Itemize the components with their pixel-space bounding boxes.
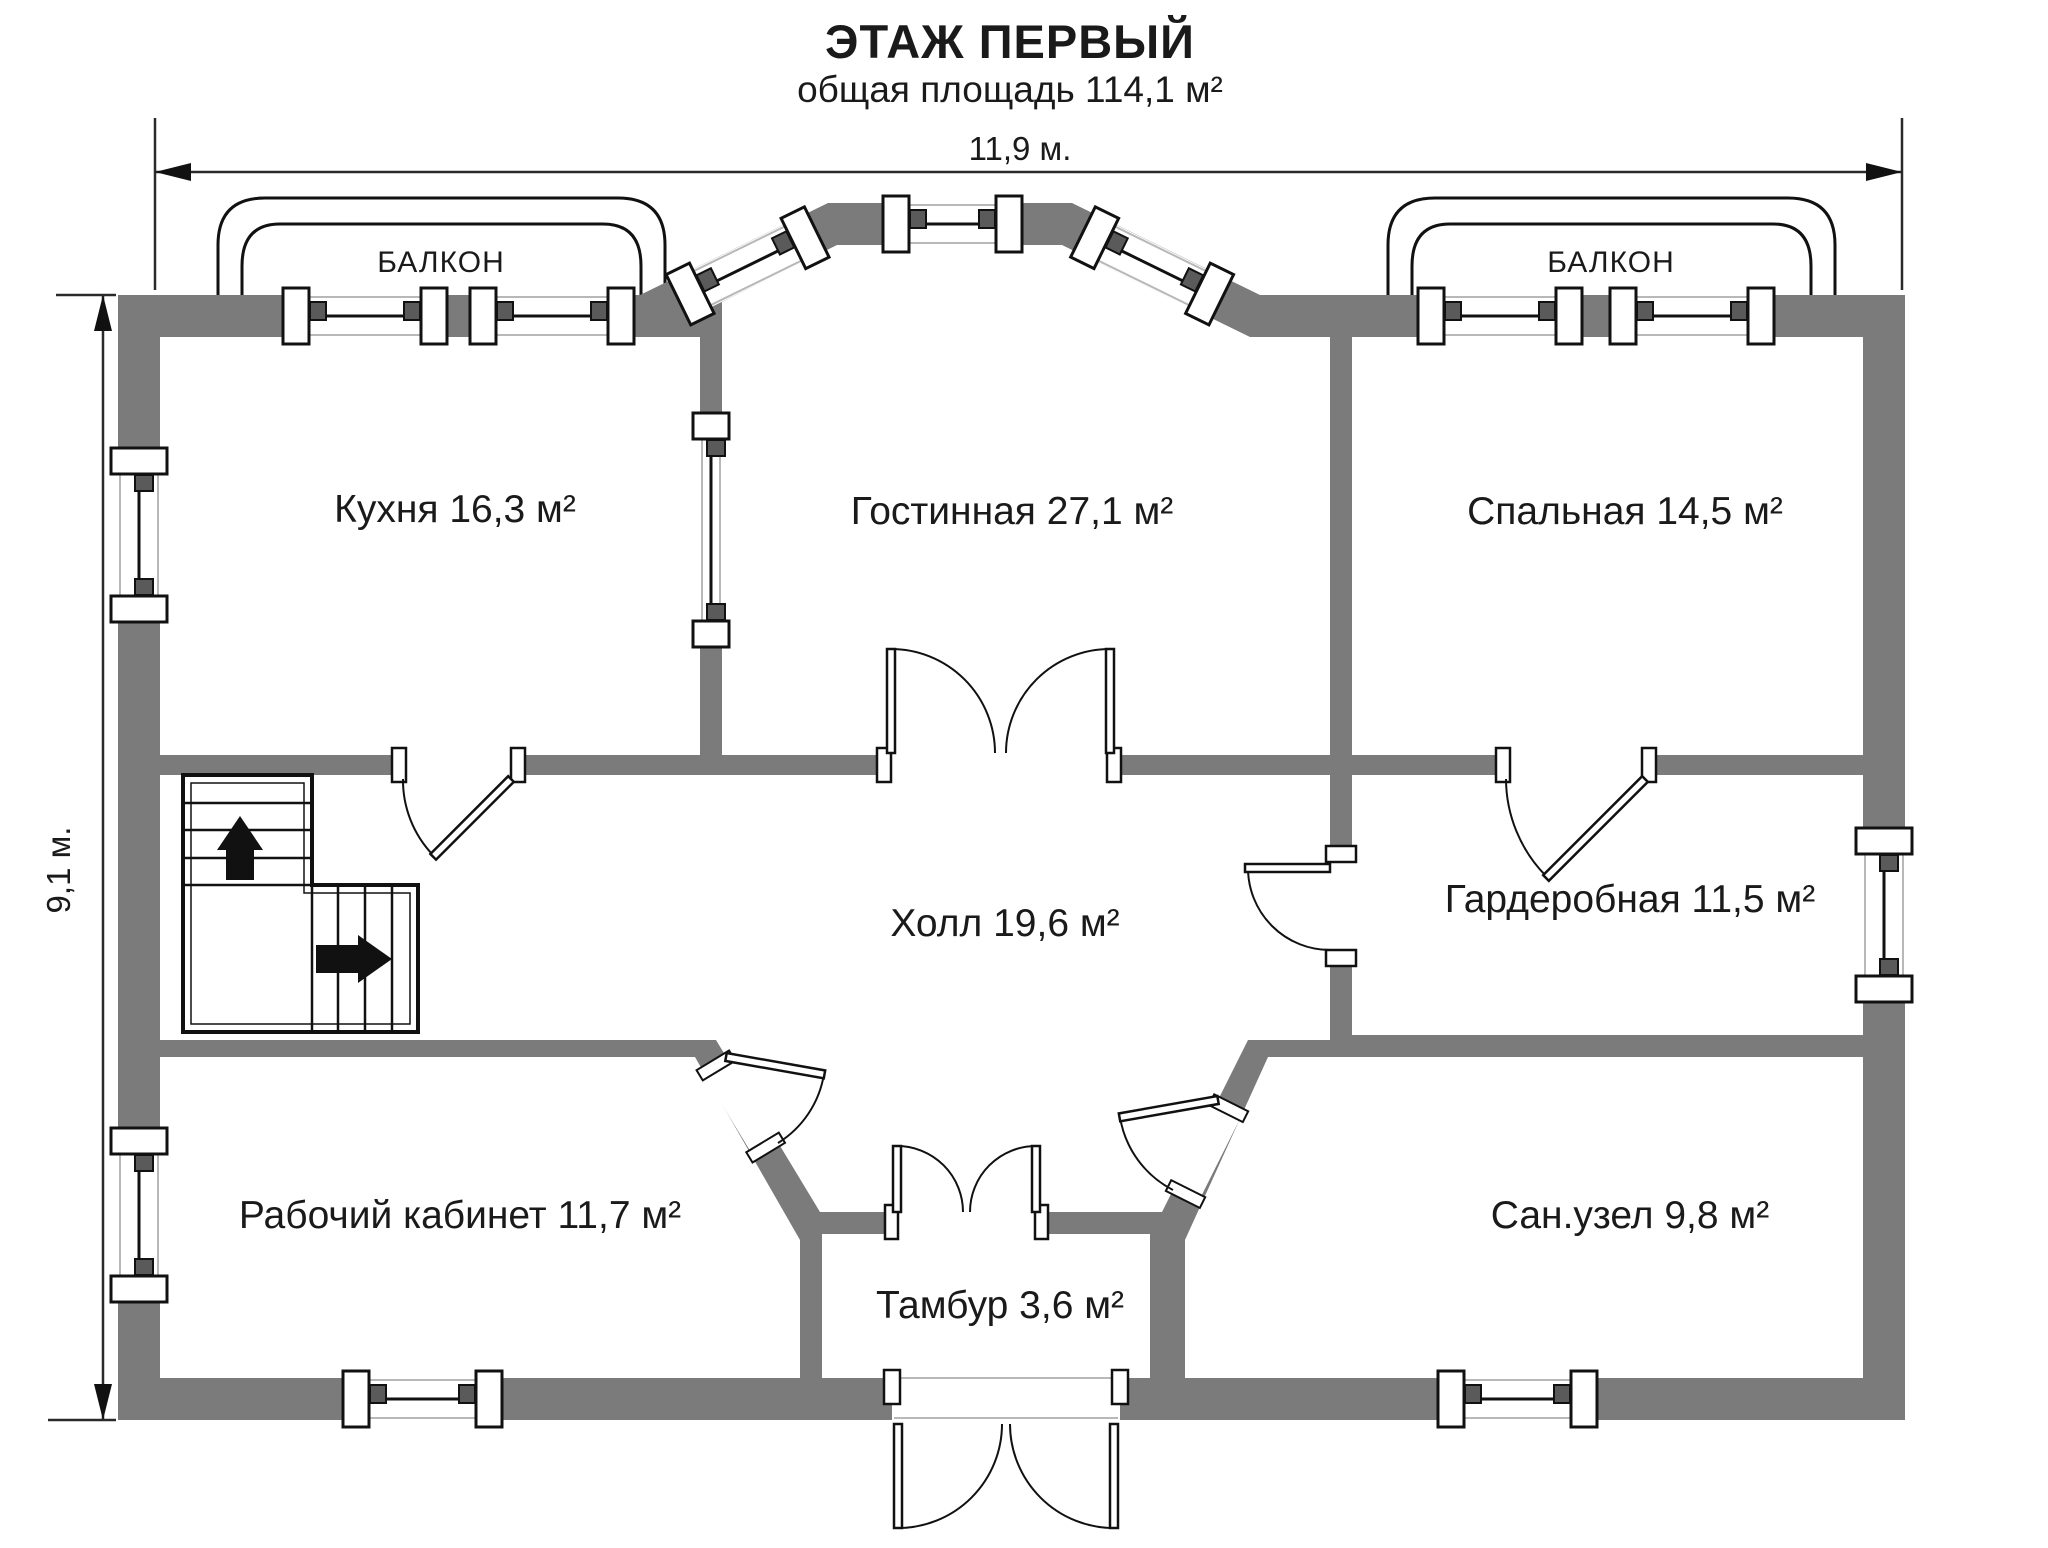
window	[343, 1371, 502, 1427]
page-subtitle: общая площадь 114,1 м²	[797, 69, 1223, 110]
double-door-entrance	[884, 1370, 1128, 1528]
dimension-height-label: 9,1 м.	[40, 827, 77, 914]
window	[470, 288, 634, 344]
window	[111, 1128, 167, 1302]
dimension-width-label: 11,9 м.	[969, 130, 1072, 167]
room-label-living: Гостинная 27,1 м²	[851, 490, 1174, 533]
window	[883, 196, 1022, 252]
room-bedroom-area	[1352, 337, 1863, 755]
room-label-wardrobe: Гардеробная 11,5 м²	[1445, 878, 1815, 921]
room-label-tambour: Тамбур 3,6 м²	[876, 1284, 1124, 1327]
room-label-bathroom: Сан.узел 9,8 м²	[1491, 1194, 1769, 1237]
room-label-hall: Холл 19,6 м²	[890, 902, 1119, 945]
room-kitchen-area	[160, 337, 700, 755]
room-label-office: Рабочий кабинет 11,7 м²	[239, 1194, 681, 1237]
window	[111, 448, 167, 622]
window	[283, 288, 447, 344]
window	[1610, 288, 1774, 344]
window	[1856, 828, 1912, 1002]
page-title: ЭТАЖ ПЕРВЫЙ	[825, 15, 1195, 68]
floor-plan-page: ЭТАЖ ПЕРВЫЙ общая площадь 114,1 м² 11,9 …	[0, 0, 2048, 1548]
balcony-left-label: БАЛКОН	[377, 246, 505, 279]
room-label-kitchen: Кухня 16,3 м²	[334, 488, 576, 531]
window	[1418, 288, 1582, 344]
balcony-right-label: БАЛКОН	[1547, 246, 1675, 279]
room-label-bedroom: Спальная 14,5 м²	[1467, 490, 1783, 533]
window	[1438, 1371, 1597, 1427]
